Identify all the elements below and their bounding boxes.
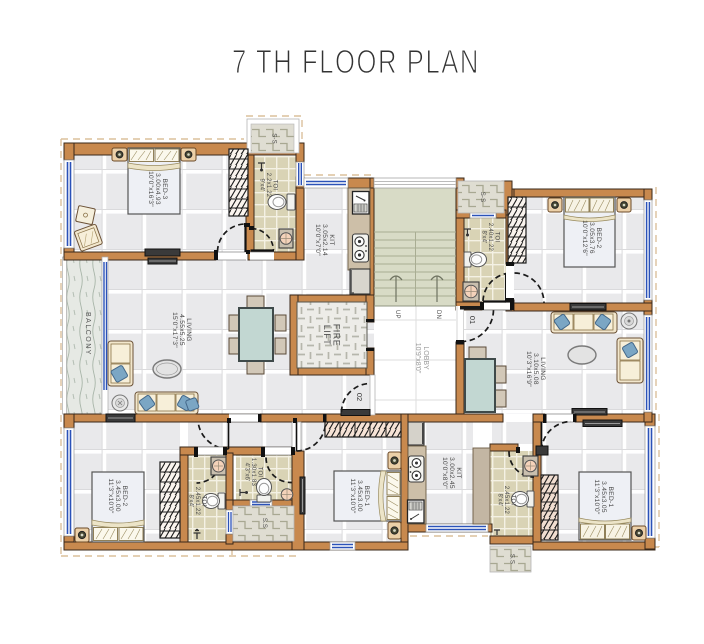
svg-text:S.S: S.S (261, 518, 267, 528)
svg-text:01: 01 (468, 316, 477, 324)
svg-text:S-S: S-S (271, 133, 277, 144)
svg-text:FIRELIFT: FIRELIFT (322, 324, 342, 347)
svg-text:DN: DN (435, 310, 441, 319)
svg-text:S.S: S.S (509, 554, 515, 564)
svg-text:UP: UP (394, 310, 400, 319)
svg-text:BALCONY: BALCONY (84, 312, 91, 356)
svg-text:02: 02 (355, 393, 364, 401)
svg-text:S-S: S-S (479, 192, 485, 203)
svg-text:LOBBY10'9"x8'0": LOBBY10'9"x8'0" (414, 343, 429, 374)
svg-text:7 TH FLOOR PLAN: 7 TH FLOOR PLAN (232, 43, 480, 80)
